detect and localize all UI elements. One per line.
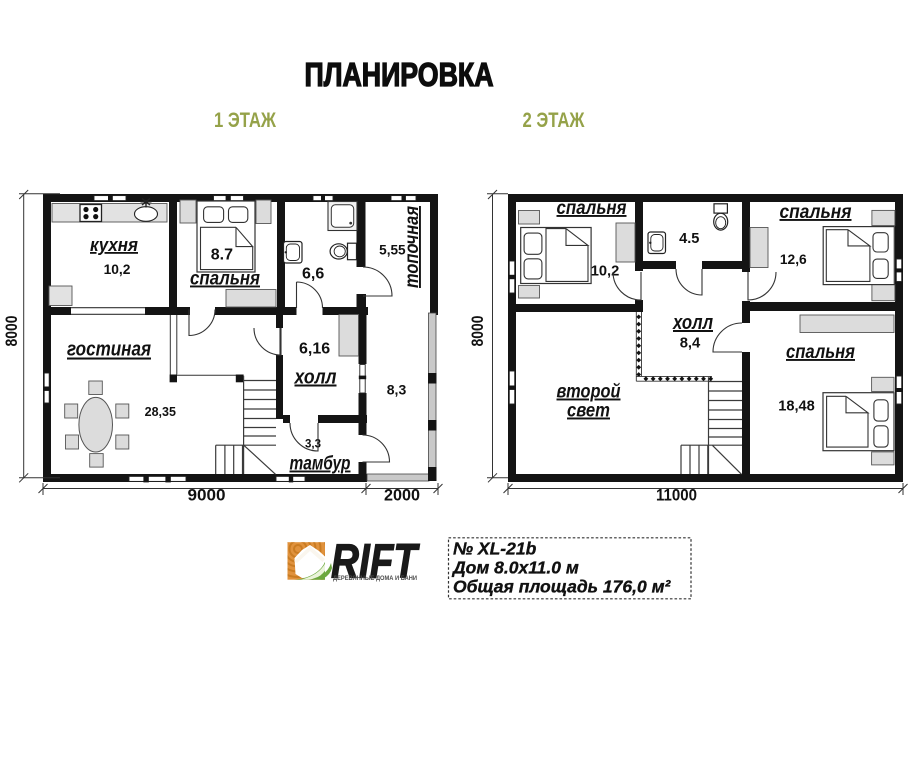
svg-text:28,35: 28,35: [145, 405, 176, 419]
svg-text:топочная: топочная: [402, 206, 423, 288]
svg-text:6,16: 6,16: [299, 341, 330, 358]
svg-text:2 ЭТАЖ: 2 ЭТАЖ: [523, 109, 586, 132]
svg-text:6,6: 6,6: [302, 266, 324, 283]
svg-text:2000: 2000: [384, 487, 420, 505]
svg-text:18,48: 18,48: [778, 399, 815, 415]
svg-text:холл: холл: [294, 367, 337, 389]
svg-text:9000: 9000: [188, 487, 226, 505]
svg-text:4.5: 4.5: [679, 231, 699, 247]
svg-text:спальня: спальня: [557, 198, 627, 219]
svg-text:11000: 11000: [656, 487, 697, 505]
svg-text:холл: холл: [672, 312, 713, 334]
svg-text:тамбур: тамбур: [290, 454, 351, 475]
svg-text:спальня: спальня: [190, 269, 260, 290]
svg-text:кухня: кухня: [90, 235, 138, 255]
svg-text:8,4: 8,4: [680, 335, 701, 351]
svg-text:12,6: 12,6: [780, 252, 807, 267]
svg-text:ДЕРЕВЯННЫЕ ДОМА И БАНИ: ДЕРЕВЯННЫЕ ДОМА И БАНИ: [333, 575, 418, 582]
svg-text:спальня: спальня: [780, 202, 852, 223]
svg-text:Дом 8.0х11.0 м: Дом 8.0х11.0 м: [451, 558, 579, 578]
svg-text:10,2: 10,2: [104, 262, 131, 277]
svg-text:гостиная: гостиная: [67, 338, 151, 361]
svg-text:8,3: 8,3: [387, 382, 407, 398]
svg-text:8.7: 8.7: [211, 246, 233, 263]
svg-text:1 ЭТАЖ: 1 ЭТАЖ: [214, 109, 277, 132]
svg-text:спальня: спальня: [786, 342, 855, 363]
svg-text:№ XL-21b: № XL-21b: [453, 539, 537, 559]
svg-text:10,2: 10,2: [591, 264, 620, 280]
svg-text:ПЛАНИРОВКА: ПЛАНИРОВКА: [305, 56, 494, 93]
svg-text:8000: 8000: [3, 316, 21, 347]
svg-text:свет: свет: [567, 400, 610, 422]
svg-text:8000: 8000: [469, 316, 487, 347]
svg-text:Общая площадь 176,0 м²: Общая площадь 176,0 м²: [453, 577, 672, 597]
